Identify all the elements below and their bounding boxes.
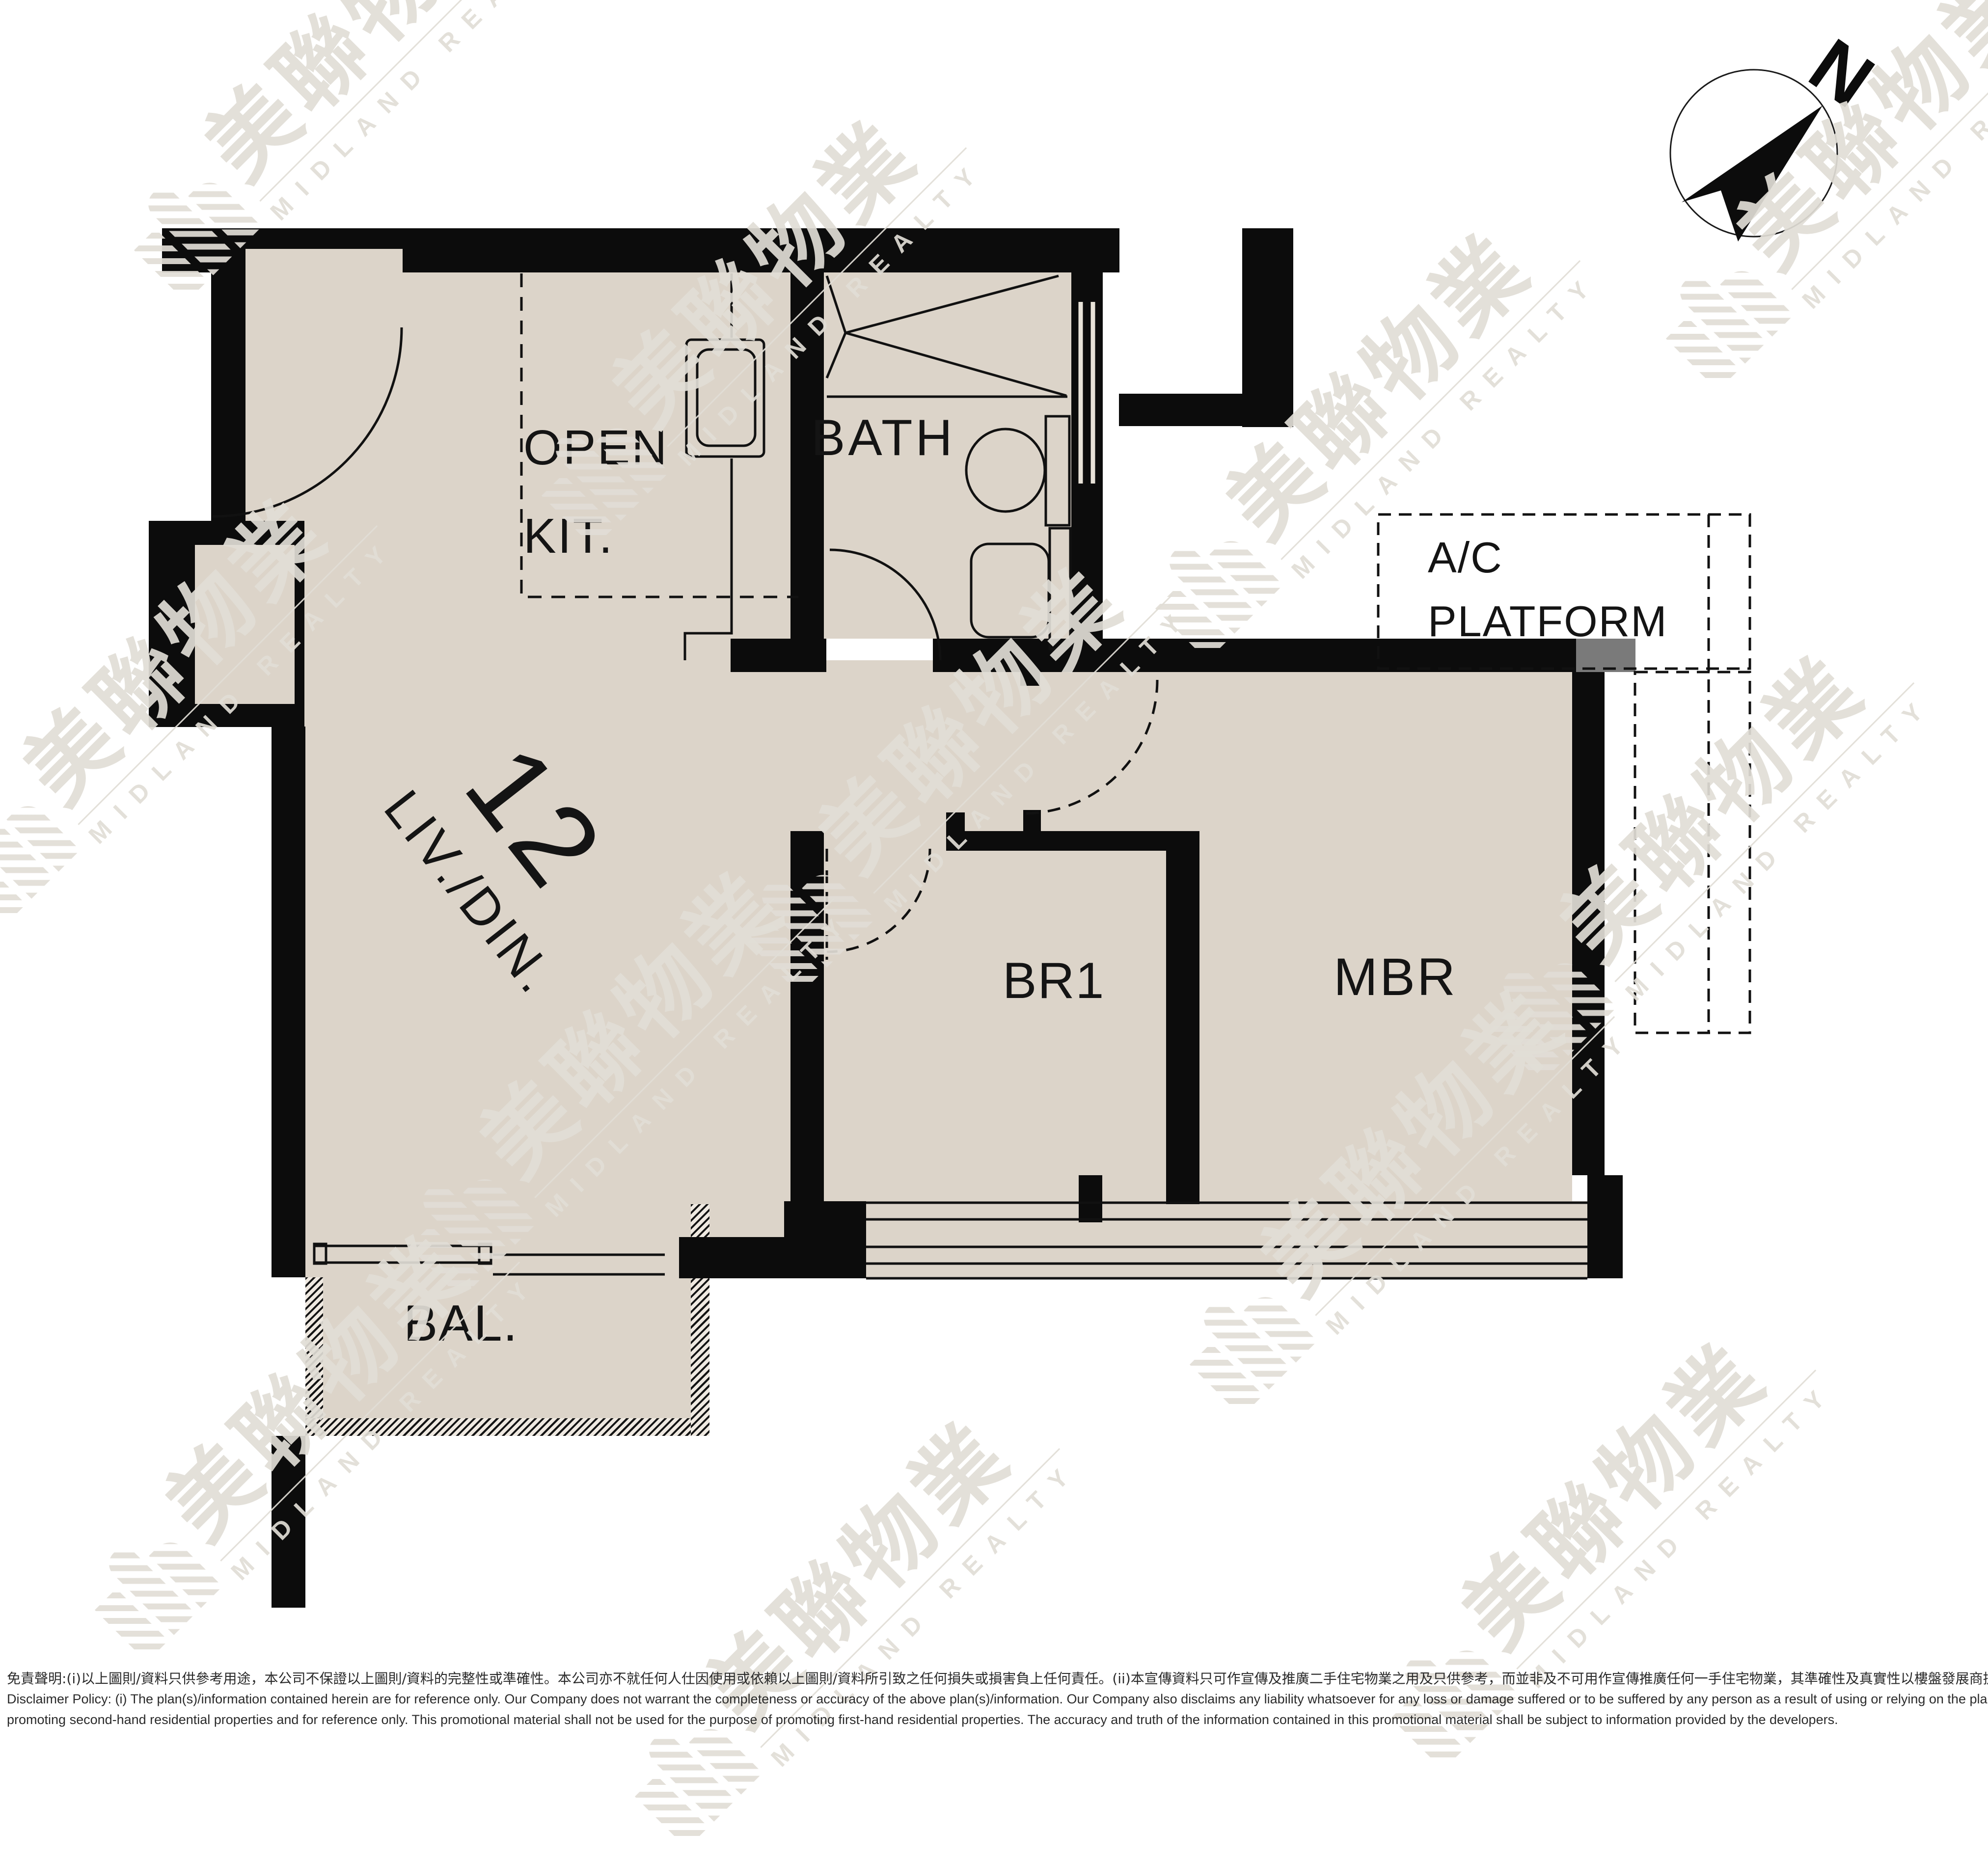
shower-lines bbox=[827, 276, 1067, 397]
br1-door-arc bbox=[827, 849, 930, 952]
bath-window-slats bbox=[1081, 302, 1093, 484]
label-open-kitchen-1: OPEN bbox=[523, 423, 668, 472]
bath-door-arc bbox=[830, 550, 940, 660]
label-ac-2: PLATFORM bbox=[1428, 600, 1668, 643]
label-br1: BR1 bbox=[1003, 955, 1105, 1006]
bedroom-window-lines bbox=[866, 1203, 1587, 1278]
liv-window-lines bbox=[493, 1255, 665, 1274]
side-platform-outline bbox=[1635, 672, 1750, 1033]
floorplan-page: { "floorplan": { "unit_number": "12", "r… bbox=[0, 0, 1988, 1742]
entry-door-arc bbox=[213, 327, 402, 516]
bath-basin bbox=[966, 429, 1045, 512]
toilet-bowl bbox=[971, 544, 1049, 637]
bath-basin-counter bbox=[1046, 416, 1069, 525]
label-ac-1: A/C bbox=[1428, 536, 1503, 579]
disclaimer-line-chinese: 免責聲明:(i)以上圖則/資料只供參考用途，本公司不保證以上圖則/資料的完整性或… bbox=[7, 1668, 1988, 1688]
kitchen-counter bbox=[685, 273, 732, 660]
label-bath: BATH bbox=[811, 412, 955, 463]
disclaimer-line-english-1: Disclaimer Policy: (i) The plan(s)/infor… bbox=[7, 1692, 1988, 1707]
toilet-cistern bbox=[1050, 528, 1070, 649]
label-mbr: MBR bbox=[1334, 950, 1457, 1003]
mbr-door-arc bbox=[1024, 680, 1157, 813]
disclaimer-line-english-2: promoting second-hand residential proper… bbox=[7, 1712, 1838, 1727]
kitchen-sink-inner bbox=[697, 350, 755, 446]
plan-linework bbox=[0, 0, 1988, 1742]
balcony-rail bbox=[314, 1246, 491, 1263]
label-balcony: BAL. bbox=[404, 1298, 518, 1349]
label-open-kitchen-2: KIT. bbox=[523, 512, 614, 561]
